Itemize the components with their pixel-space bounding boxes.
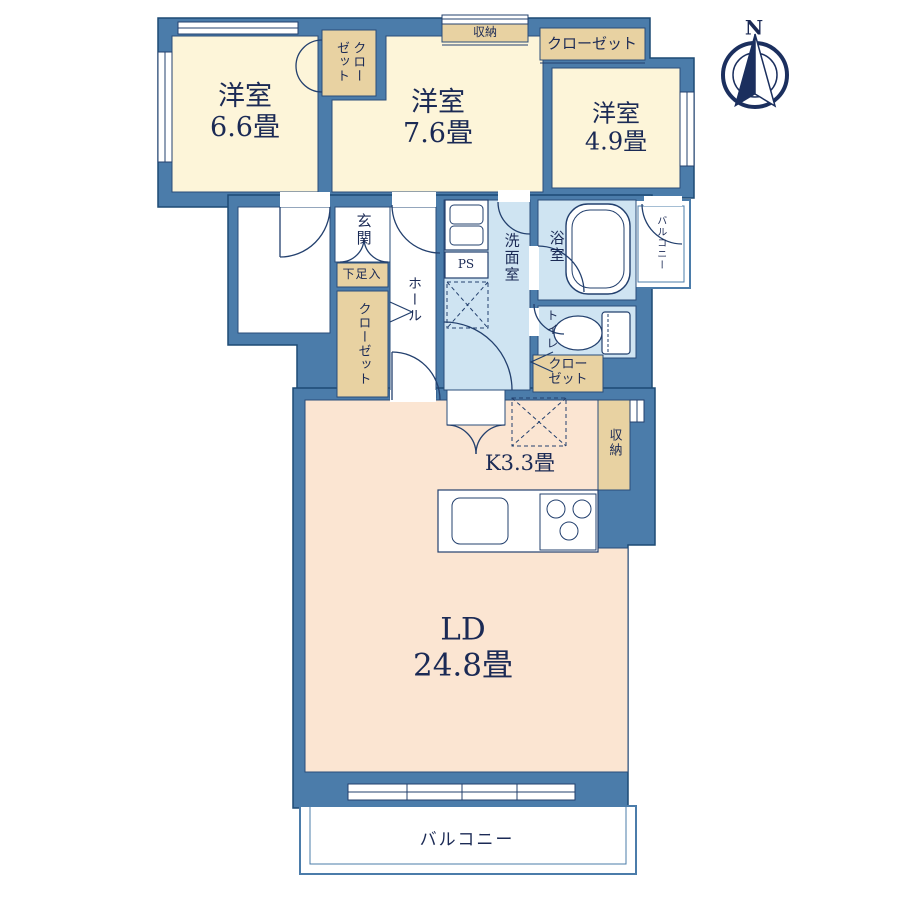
label-living-dining: LD24.8畳 [413, 612, 513, 683]
kitchen-door-recess [447, 390, 505, 425]
label-bedroom-76: 洋室7.6畳 [403, 87, 473, 149]
label-hall: ホール [406, 276, 422, 324]
label-closet-top-right: クローゼット [547, 35, 637, 52]
meter-box-unit-1 [450, 205, 483, 224]
label-storage-kitchen: 収納 [606, 428, 621, 458]
label-storage-top: 収納 [473, 26, 497, 40]
label-bedroom-49: 洋室4.9畳 [585, 100, 647, 155]
meter-box-unit-2 [450, 226, 483, 245]
label-toilet: トイレ [544, 309, 558, 351]
opening-bedroom76-door [392, 192, 436, 207]
bedroom-66-name: 洋室 [210, 81, 280, 112]
ld-size: 24.8畳 [413, 648, 513, 684]
compass [723, 34, 787, 107]
opening-bedroom49-door [498, 190, 530, 202]
label-washroom: 洗面室 [502, 233, 519, 284]
bedroom-76-name: 洋室 [403, 87, 473, 118]
bedroom-49-name: 洋室 [585, 100, 647, 128]
opening-toilet-door [529, 308, 539, 336]
label-bathroom: 浴室 [547, 230, 564, 264]
label-kitchen: K3.3畳 [485, 451, 555, 475]
floor-porch [238, 207, 330, 333]
bedroom-76-size: 7.6畳 [403, 118, 473, 149]
toilet-bowl [554, 316, 602, 350]
toilet-tank [602, 312, 630, 354]
opening-balcony-door [644, 196, 682, 206]
label-closet-hall: クローゼット [355, 302, 370, 386]
stove-burner-1 [547, 500, 565, 518]
label-shoe-cabinet: 下足入 [342, 268, 381, 282]
label-main-balcony: バルコニー [420, 831, 515, 851]
floor-plan: 洋室6.6畳 洋室7.6畳 洋室4.9畳 LD24.8畳 K3.3畳 クロー ゼ… [0, 0, 920, 920]
opening-hall-ld [390, 390, 436, 402]
opening-bedroom66-door [280, 192, 330, 207]
label-bedroom-66: 洋室6.6畳 [210, 81, 280, 143]
bedroom-49-size: 4.9畳 [585, 128, 647, 156]
label-closet-between-bedrooms: クロー ゼット [333, 41, 366, 83]
compass-north-label: N [745, 17, 763, 40]
bedroom-66-size: 6.6畳 [210, 112, 280, 143]
stove-burner-2 [573, 500, 591, 518]
label-closet-washroom: クロー ゼット [548, 358, 587, 388]
ld-name: LD [413, 612, 513, 648]
label-pipe-space: PS [458, 258, 474, 272]
label-side-balcony: バルコニー [654, 216, 666, 271]
stove-burner-3 [560, 522, 578, 540]
kitchen-sink [452, 498, 508, 544]
floor-ldk [305, 400, 628, 772]
opening-bath-door [529, 246, 539, 290]
label-entrance: 玄関 [354, 213, 371, 247]
